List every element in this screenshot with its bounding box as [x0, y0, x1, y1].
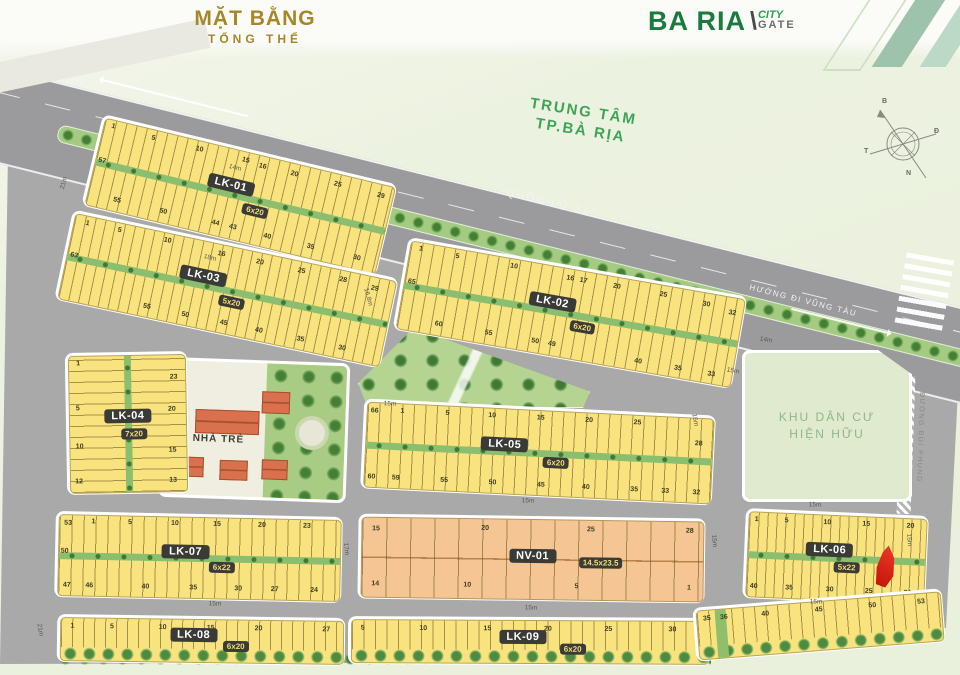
lot-number: 35 — [785, 584, 793, 591]
block-lk-07[interactable]: 5315101520235047464035302724LK-076x22 — [54, 511, 343, 603]
lot-number: 27 — [322, 626, 330, 633]
lot-number: 5 — [445, 410, 449, 417]
lot-number: 35 — [306, 243, 315, 252]
site-plan-canvas: HƯỚNG ĐI TP.HỒ CHÍ MINH QUỐC LỘ 51 HƯỚNG… — [0, 0, 960, 675]
block-lots: 5315101520235047464035302724LK-076x22 — [57, 514, 342, 602]
lot-number: 40 — [141, 584, 149, 591]
block-dimension: 7x20 — [121, 428, 147, 439]
school-building — [261, 459, 288, 480]
lot-number: 49 — [547, 341, 556, 349]
tree-row — [352, 649, 708, 664]
tree-row — [61, 647, 343, 664]
block-lots: 15202528141051NV-0114.5x23.5 — [360, 517, 704, 603]
lot-number: 50 — [531, 338, 540, 346]
lot-number: 47 — [63, 582, 71, 589]
lot-number: 50 — [868, 602, 876, 610]
lot-number: 10 — [463, 582, 471, 589]
lot-number: 30 — [234, 586, 242, 593]
lot-number: 27 — [271, 586, 279, 593]
lot-row — [58, 559, 340, 601]
dimension-label: 15m — [209, 600, 222, 607]
lot-number: 1 — [755, 516, 759, 523]
lot-number: 20 — [255, 258, 264, 266]
block-lk-04[interactable]: 12352010151213LK-047x20 — [65, 351, 189, 495]
block-label: LK-09 — [499, 630, 546, 644]
dimension-label: 17m — [342, 542, 350, 555]
lot-number: 53 — [917, 598, 925, 606]
city-center-label: TRUNG TÂM TP.BÀ RỊA — [526, 94, 639, 148]
brand-logo: BA RIA \ CITY GATE — [648, 8, 796, 34]
lot-number: 10 — [159, 623, 167, 630]
residential-label-line1: KHU DÂN CƯ — [779, 409, 875, 426]
block-label: LK-08 — [170, 628, 217, 643]
lot-number: 1 — [400, 407, 404, 414]
lot-number: 24 — [310, 587, 318, 594]
lot-number: 14 — [371, 581, 379, 588]
lot-number: 15 — [537, 414, 545, 421]
lot-number: 40 — [254, 326, 263, 334]
lot-number: 25 — [587, 527, 595, 534]
title-line1: MẶT BẰNG — [150, 7, 360, 31]
lot-number: 55 — [113, 196, 122, 205]
lot-number: 32 — [692, 489, 700, 496]
kindergarten-label: NHÀ TRẺ — [192, 433, 244, 446]
lot-number: 57 — [97, 157, 106, 166]
lot-number: 10 — [488, 412, 496, 419]
school-building — [262, 391, 291, 414]
lot-col — [130, 355, 187, 492]
block-lk-08[interactable]: 1510152027LK-086x20 — [57, 614, 346, 666]
lot-number: 29 — [376, 192, 385, 201]
block-lk-05[interactable]: 66151015202528605955504540353332LK-056x2… — [360, 398, 716, 505]
lot-number: 50 — [488, 479, 496, 486]
lot-number: 35 — [630, 486, 638, 493]
lot-number: 15 — [372, 525, 380, 532]
lot-number: 20 — [255, 625, 263, 632]
lot-number: 33 — [707, 371, 716, 379]
lot-number: 15 — [862, 520, 870, 527]
compass-icon: B Đ T N — [858, 92, 948, 184]
lot-number: 25 — [297, 267, 306, 275]
block-lk-09[interactable]: 51015202530LK-096x20 — [348, 616, 710, 666]
block-label: LK-07 — [162, 544, 209, 559]
lot-number: 60 — [367, 473, 375, 480]
lot-number: 13 — [169, 477, 177, 484]
lot-number: 55 — [440, 477, 448, 484]
lot-number: 30 — [337, 344, 346, 352]
lot-number: 12 — [75, 478, 83, 485]
master-plan-map: HƯỚNG ĐI TP.HỒ CHÍ MINH QUỐC LỘ 51 HƯỚNG… — [0, 0, 960, 675]
lot-number: 45 — [219, 319, 228, 327]
lot-number: 25 — [333, 180, 342, 189]
lot-number: 40 — [262, 233, 271, 242]
compass-north: B — [882, 98, 887, 105]
lot-number: 25 — [633, 419, 641, 426]
dimension-label: 15m — [710, 534, 718, 547]
lot-number: 55 — [142, 302, 151, 310]
logo-slash: \ — [750, 8, 757, 34]
lot-number: 15 — [213, 521, 221, 528]
dimension-label: 15m — [522, 497, 535, 504]
lot-number: 5 — [574, 583, 578, 590]
lot-number: 5 — [128, 519, 132, 526]
lot-number: 65 — [407, 278, 416, 286]
lot-number: 20 — [168, 406, 176, 413]
lot-number: 40 — [750, 583, 758, 590]
lot-number: 15 — [169, 447, 177, 454]
lot-number: 15 — [241, 156, 250, 165]
block-dimension: 6x22 — [209, 562, 235, 574]
lot-number: 50 — [61, 548, 69, 555]
block-lots: 51015202530LK-096x20 — [351, 619, 709, 665]
lot-number: 25 — [604, 625, 612, 632]
lot-number: 10 — [419, 624, 427, 631]
lot-number: 5 — [76, 405, 80, 412]
lot-number: 20 — [612, 282, 621, 290]
logo-text-main: BA RIA — [648, 8, 746, 34]
dimension-label: 15m — [383, 400, 396, 408]
lot-number: 28 — [339, 275, 348, 283]
lot-number: 1 — [76, 360, 80, 367]
lot-number: 30 — [702, 301, 711, 309]
lot-number: 15 — [483, 625, 491, 632]
lot-number: 55 — [484, 329, 493, 337]
compass-west: T — [864, 148, 868, 155]
lot-number: 43 — [228, 223, 237, 232]
school-building — [219, 460, 248, 481]
block-dimension: 6x20 — [560, 643, 586, 654]
logo-text-gate: GATE — [758, 20, 796, 30]
lot-number: 1 — [91, 519, 95, 526]
block-nv-01[interactable]: 15202528141051NV-0114.5x23.5 — [357, 514, 705, 604]
block-dimension: 6x20 — [223, 641, 249, 652]
lot-number: 46 — [85, 583, 93, 590]
lot-number: 45 — [815, 606, 823, 614]
lot-number: 16 — [566, 274, 575, 282]
lot-number: 5 — [785, 517, 789, 524]
lot-number: 44 — [211, 219, 220, 228]
lot-number: 30 — [826, 586, 834, 593]
header: MẶT BẰNG TỔNG THỂ BA RIA \ CITY GATE — [0, 0, 960, 58]
lot-number: 35 — [296, 335, 305, 343]
lot-col — [69, 356, 126, 493]
block-lots: 1510152027LK-086x20 — [60, 617, 345, 665]
lot-number: 45 — [537, 481, 545, 488]
lot-number: 10 — [163, 236, 172, 244]
lot-number: 40 — [633, 358, 642, 366]
lot-number: 35 — [703, 615, 711, 623]
block-label: LK-04 — [104, 408, 151, 423]
lot-number: 32 — [728, 309, 737, 317]
block-lots: 12352010151213LK-047x20 — [68, 354, 188, 494]
lot-number: 66 — [371, 408, 379, 415]
page-title: MẶT BẰNG TỔNG THỂ — [150, 7, 360, 46]
lot-number: 20 — [481, 525, 489, 532]
dimension-label: 15m — [810, 598, 823, 605]
lot-number: 63 — [70, 252, 79, 260]
existing-residential-area: KHU DÂN CƯ HIỆN HỮU — [742, 350, 912, 502]
lot-number: 28 — [686, 528, 694, 535]
lot-number: 20 — [585, 416, 593, 423]
lot-number: 35 — [189, 585, 197, 592]
lot-number: 10 — [195, 145, 204, 154]
block-dimension: 5x22 — [834, 562, 860, 574]
lot-number: 17 — [579, 277, 588, 285]
title-line2: TỔNG THỂ — [150, 32, 360, 46]
compass-south: N — [906, 170, 911, 177]
lot-number: 10 — [76, 443, 84, 450]
lot-number: 50 — [159, 207, 168, 216]
lot-number: 10 — [510, 262, 519, 270]
lot-number: 23 — [170, 373, 178, 380]
lot-number: 30 — [352, 254, 361, 263]
block-label: NV-01 — [509, 549, 556, 564]
lot-number: 59 — [392, 474, 400, 481]
lot-number: 40 — [582, 484, 590, 491]
compass-east: Đ — [934, 128, 939, 135]
lot-number: 50 — [181, 310, 190, 318]
lot-number: 5 — [110, 623, 114, 630]
lot-number: 29 — [370, 285, 379, 293]
residential-label-line2: HIỆN HỮU — [789, 426, 865, 443]
block-lots: 66151015202528605955504540353332LK-056x2… — [363, 402, 715, 505]
lot-number: 10 — [823, 519, 831, 526]
lot-number: 23 — [303, 523, 311, 530]
lot-number: 25 — [659, 291, 668, 299]
block-label: LK-06 — [806, 541, 854, 557]
lot-number: 16 — [217, 250, 226, 258]
lot-number: 20 — [906, 522, 914, 529]
lot-number: 60 — [434, 321, 443, 329]
lot-number: 20 — [290, 170, 299, 179]
lot-number: 28 — [695, 440, 703, 447]
dimension-label: 15m — [809, 501, 822, 508]
dimension-label: 15m — [525, 604, 538, 611]
lot-number: 10 — [171, 520, 179, 527]
school-building — [195, 409, 260, 435]
lot-number: 35 — [673, 365, 682, 373]
lot-number: 36 — [720, 613, 728, 621]
lot-number: 5 — [361, 624, 365, 631]
dimension-label: 15m — [905, 533, 913, 546]
lot-number: 33 — [661, 487, 669, 494]
lot-number: 53 — [64, 520, 72, 527]
lot-number: 16 — [258, 162, 267, 171]
block-dimension: 14.5x23.5 — [579, 557, 623, 569]
block-dimension: 6x20 — [543, 457, 569, 469]
lot-number: 30 — [669, 626, 677, 633]
lot-number: 20 — [258, 522, 266, 529]
lot-number: 40 — [761, 610, 769, 618]
lot-number: 1 — [70, 623, 74, 630]
block-label: LK-05 — [481, 436, 529, 452]
lot-number: 1 — [687, 585, 691, 592]
